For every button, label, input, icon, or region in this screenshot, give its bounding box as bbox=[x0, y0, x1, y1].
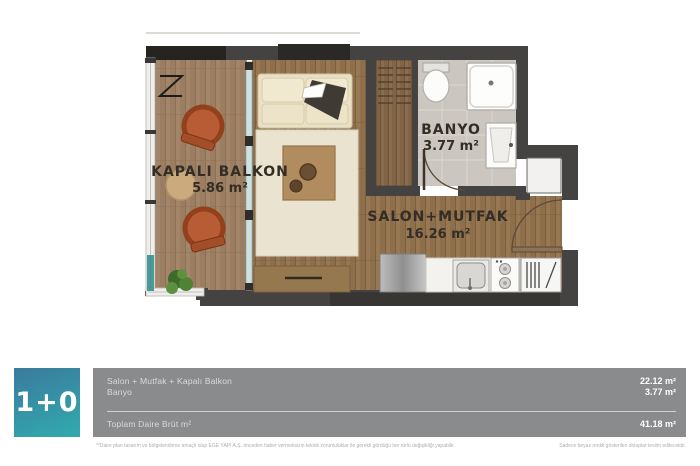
summary-row-label: Salon + Mutfak + Kapalı Balkon bbox=[107, 376, 232, 386]
shower bbox=[467, 63, 516, 110]
utility-niche bbox=[527, 158, 561, 193]
washbasin bbox=[486, 123, 516, 168]
room-label-balcony: KAPALI BALKON bbox=[151, 164, 289, 180]
floor-plan: KAPALI BALKON 5.86 m² BANYO 3.77 m² SALO… bbox=[0, 0, 700, 360]
kitchen-sink bbox=[453, 260, 489, 292]
room-label-bathroom: BANYO bbox=[421, 122, 481, 138]
footnote-disclaimer: **Daire plan tasarım ve bölgelendirme am… bbox=[96, 443, 455, 449]
wardrobe bbox=[376, 60, 412, 186]
unit-type-label: 1+0 bbox=[15, 387, 78, 418]
summary-total-label: Toplam Daire Brüt m² bbox=[107, 419, 191, 429]
unit-type-badge: 1+0 bbox=[14, 368, 80, 437]
vent-grille bbox=[521, 258, 561, 292]
coffee-table bbox=[283, 146, 335, 200]
toilet bbox=[423, 63, 449, 102]
summary-total-row: Toplam Daire Brüt m² 41.18 m² bbox=[107, 419, 676, 430]
summary-row-value: 22.12 m² bbox=[640, 376, 676, 386]
room-area-bathroom: 3.77 m² bbox=[423, 139, 479, 154]
tv-unit bbox=[254, 266, 350, 292]
summary-total-value: 41.18 m² bbox=[640, 419, 676, 429]
fridge bbox=[380, 254, 426, 292]
kitchen bbox=[380, 254, 561, 292]
summary-divider bbox=[107, 411, 676, 412]
footnote-cabinets: Sadece beyaz renkli gösterilen dolaplar … bbox=[559, 443, 686, 449]
footnotes: **Daire plan tasarım ve bölgelendirme am… bbox=[96, 443, 686, 449]
room-area-salon: 16.26 m² bbox=[406, 227, 471, 242]
sofa bbox=[258, 74, 352, 128]
info-section: 1+0 Salon + Mutfak + Kapalı Balkon 22.12… bbox=[0, 368, 700, 466]
summary-row-label: Banyo bbox=[107, 387, 132, 397]
summary-row: Salon + Mutfak + Kapalı Balkon 22.12 m² bbox=[107, 376, 676, 387]
stove bbox=[491, 258, 519, 292]
summary-row: Banyo 3.77 m² bbox=[107, 387, 676, 398]
room-label-salon: SALON+MUTFAK bbox=[367, 209, 508, 225]
room-area-balcony: 5.86 m² bbox=[192, 181, 248, 196]
summary-row-value: 3.77 m² bbox=[645, 387, 676, 397]
area-summary-panel: Salon + Mutfak + Kapalı Balkon 22.12 m² … bbox=[93, 368, 686, 437]
parapet-line bbox=[146, 32, 360, 34]
